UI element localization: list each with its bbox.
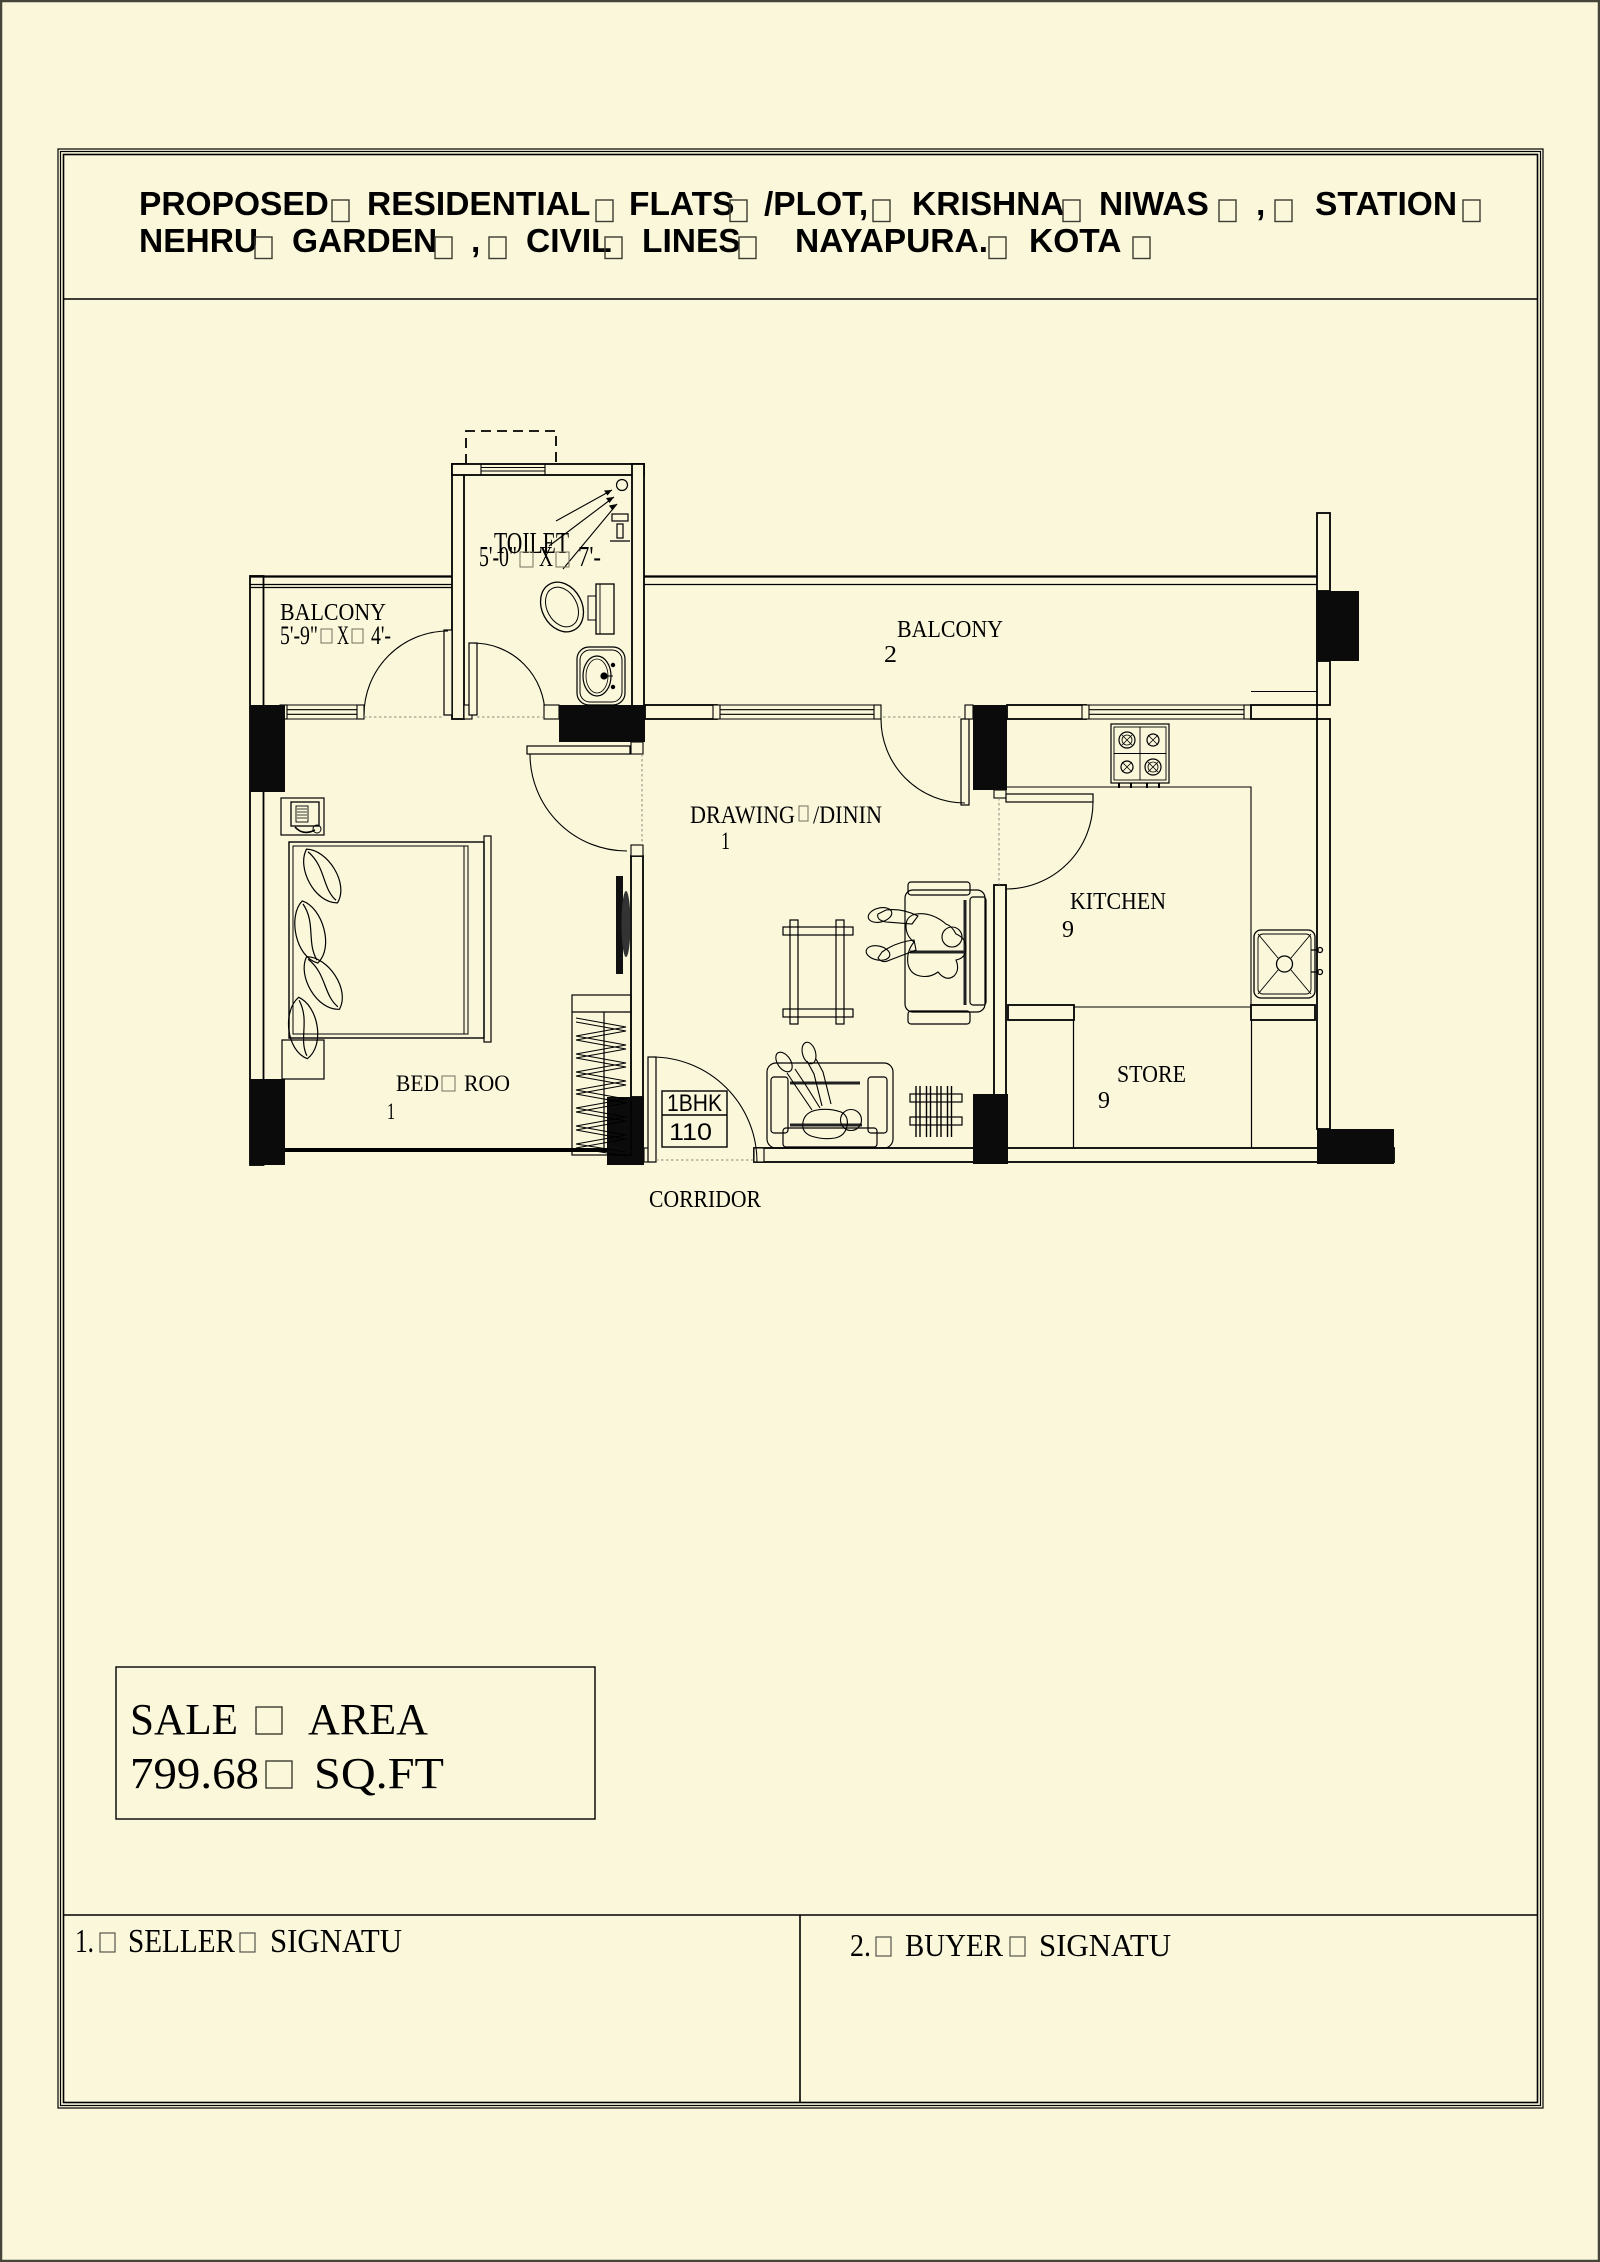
svg-text:,: , xyxy=(471,223,480,260)
svg-text:NAYAPURA.: NAYAPURA. xyxy=(795,223,988,260)
svg-text:SIGNATU: SIGNATU xyxy=(270,1923,402,1960)
svg-text:KRISHNA: KRISHNA xyxy=(912,186,1065,223)
svg-text:X: X xyxy=(337,621,349,650)
svg-text:STORE: STORE xyxy=(1117,1062,1186,1088)
svg-text:CORRIDOR: CORRIDOR xyxy=(649,1187,761,1213)
svg-text:ROO: ROO xyxy=(464,1071,510,1096)
svg-text:SELLER: SELLER xyxy=(128,1923,235,1960)
svg-text:CIVIL: CIVIL xyxy=(526,223,612,260)
svg-text:4'-: 4'- xyxy=(371,621,391,650)
svg-text:NEHRU: NEHRU xyxy=(139,223,258,260)
svg-text:1: 1 xyxy=(721,828,730,855)
svg-text:2: 2 xyxy=(884,642,897,668)
svg-text:STATION: STATION xyxy=(1315,186,1457,223)
svg-text:BED: BED xyxy=(396,1071,439,1096)
svg-text:AREA: AREA xyxy=(308,1695,428,1744)
svg-text:BUYER: BUYER xyxy=(905,1927,1004,1963)
svg-text:799.68: 799.68 xyxy=(130,1749,259,1798)
svg-text:1: 1 xyxy=(387,1099,395,1124)
svg-text:7'-: 7'- xyxy=(578,541,601,573)
svg-text:FLATS: FLATS xyxy=(629,186,734,223)
svg-text:SIGNATU: SIGNATU xyxy=(1039,1927,1171,1963)
svg-text:110: 110 xyxy=(669,1119,712,1146)
svg-text:/DININ: /DININ xyxy=(813,802,882,829)
svg-text:1.: 1. xyxy=(75,1923,94,1960)
svg-text:1BHK: 1BHK xyxy=(667,1090,722,1117)
svg-text:2.: 2. xyxy=(850,1927,871,1963)
svg-text:KOTA: KOTA xyxy=(1029,223,1121,260)
svg-text:9: 9 xyxy=(1062,917,1074,943)
svg-text:GARDEN: GARDEN xyxy=(292,223,437,260)
svg-text:LINES: LINES xyxy=(642,223,741,260)
svg-text:NIWAS: NIWAS xyxy=(1099,186,1209,223)
svg-text:/PLOT,: /PLOT, xyxy=(764,186,868,223)
svg-text:5'-0": 5'-0" xyxy=(479,541,517,573)
svg-text:SALE: SALE xyxy=(130,1695,238,1744)
svg-text:RESIDENTIAL: RESIDENTIAL xyxy=(367,186,590,223)
svg-text:PROPOSED: PROPOSED xyxy=(139,186,329,223)
svg-text:DRAWING: DRAWING xyxy=(690,802,795,829)
svg-text:KITCHEN: KITCHEN xyxy=(1070,889,1166,915)
svg-text:BALCONY: BALCONY xyxy=(897,617,1003,643)
svg-text:,: , xyxy=(1256,186,1265,223)
svg-text:X: X xyxy=(539,541,553,573)
svg-text:5'-9": 5'-9" xyxy=(280,621,318,650)
svg-text:9: 9 xyxy=(1098,1088,1110,1114)
svg-text:SQ.FT: SQ.FT xyxy=(314,1749,444,1798)
